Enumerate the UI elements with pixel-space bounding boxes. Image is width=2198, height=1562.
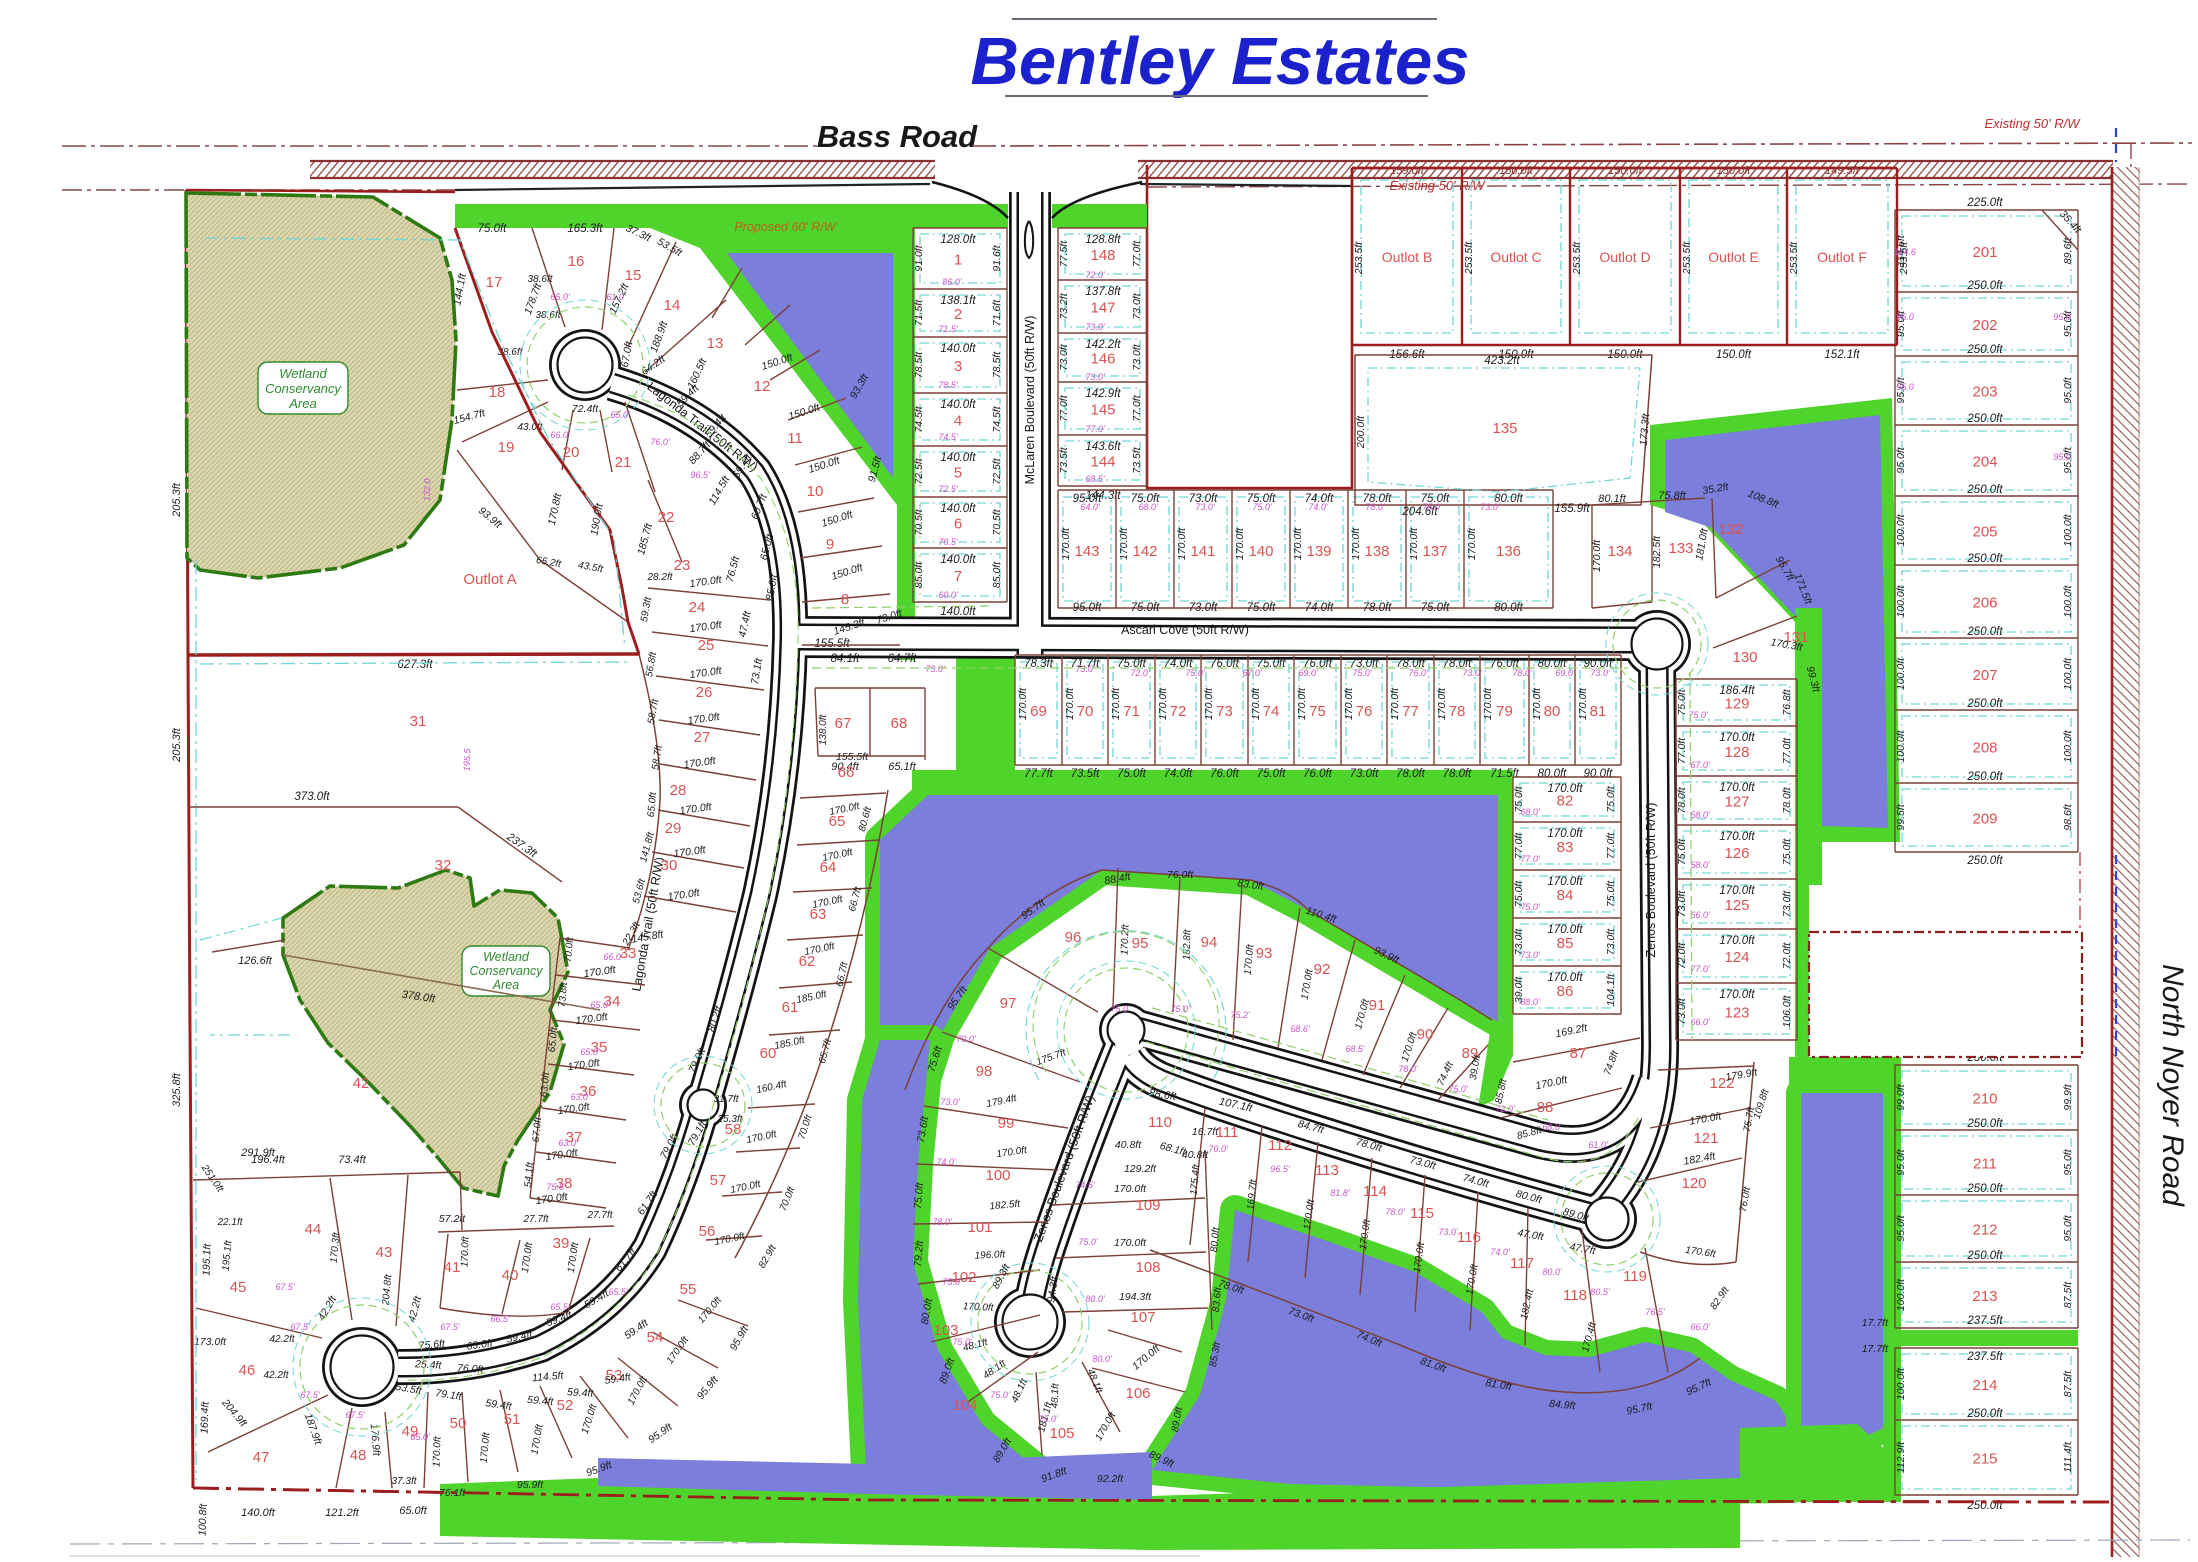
svg-text:128: 128 — [1724, 744, 1749, 761]
svg-text:99.5ft: 99.5ft — [1895, 803, 1907, 830]
svg-text:77.0ft: 77.0ft — [1781, 737, 1793, 764]
svg-text:61.0': 61.0' — [606, 292, 626, 302]
svg-text:75.0': 75.0' — [1520, 902, 1540, 912]
svg-text:108: 108 — [1135, 1259, 1160, 1276]
svg-text:73.5ft: 73.5ft — [1058, 446, 1070, 473]
svg-text:25.4ft: 25.4ft — [414, 1358, 443, 1371]
svg-text:106: 106 — [1125, 1385, 1150, 1402]
svg-text:100.0ft: 100.0ft — [2062, 729, 2074, 762]
svg-text:112.9ft: 112.9ft — [1895, 1441, 1907, 1473]
svg-text:75.0': 75.0' — [1688, 710, 1708, 720]
svg-text:100.8ft: 100.8ft — [196, 1503, 209, 1537]
svg-text:165.3ft: 165.3ft — [567, 223, 603, 235]
svg-text:155.5ft: 155.5ft — [836, 751, 869, 763]
svg-text:76.0': 76.0' — [1408, 668, 1428, 678]
svg-text:Zenos Boulevard (50ft R/W): Zenos Boulevard (50ft R/W) — [1644, 803, 1658, 958]
svg-text:85: 85 — [1557, 935, 1574, 952]
svg-text:150.0ft: 150.0ft — [1499, 165, 1534, 177]
svg-text:253.5ft: 253.5ft — [1353, 241, 1365, 275]
svg-text:66.5': 66.5' — [490, 1314, 510, 1324]
svg-text:4: 4 — [954, 413, 962, 430]
svg-text:207: 207 — [1972, 667, 1997, 684]
svg-text:77.5ft: 77.5ft — [1058, 240, 1070, 267]
svg-text:70.0': 70.0' — [1208, 1144, 1228, 1154]
svg-text:205.3ft: 205.3ft — [171, 482, 183, 518]
svg-text:78.0': 78.0' — [1385, 1207, 1405, 1217]
svg-text:17: 17 — [486, 274, 503, 291]
svg-text:72.5ft: 72.5ft — [913, 457, 925, 484]
svg-text:Wetland: Wetland — [279, 366, 327, 381]
svg-text:74.0': 74.0' — [1308, 502, 1328, 512]
svg-text:203: 203 — [1972, 384, 1997, 401]
svg-text:84.1ft: 84.1ft — [831, 653, 861, 665]
svg-text:71: 71 — [1123, 703, 1140, 720]
svg-text:225.0ft: 225.0ft — [1966, 197, 2003, 209]
svg-text:253.5ft: 253.5ft — [1463, 241, 1475, 275]
svg-text:73.0': 73.0' — [1520, 950, 1540, 960]
svg-text:99.0ft: 99.0ft — [1895, 1083, 1907, 1110]
svg-text:72.5': 72.5' — [938, 484, 958, 494]
svg-text:205.3ft: 205.3ft — [171, 727, 183, 763]
svg-text:170.0ft: 170.0ft — [1114, 1237, 1147, 1249]
svg-text:141: 141 — [1190, 543, 1215, 560]
svg-text:51: 51 — [504, 1411, 521, 1428]
svg-text:100.0ft: 100.0ft — [2062, 584, 2074, 617]
svg-text:250.0ft: 250.0ft — [1966, 344, 2003, 356]
svg-text:75.0ft: 75.0ft — [1605, 785, 1617, 812]
svg-text:98.6ft: 98.6ft — [2062, 803, 2074, 830]
svg-text:250.0ft: 250.0ft — [1966, 484, 2003, 496]
svg-text:78.5': 78.5' — [938, 380, 958, 390]
svg-text:169.4ft: 169.4ft — [198, 1401, 211, 1435]
svg-text:67.5': 67.5' — [290, 1322, 310, 1332]
svg-text:59.4ft: 59.4ft — [567, 1386, 595, 1399]
svg-text:73.5ft: 73.5ft — [1131, 446, 1143, 473]
svg-text:78.0ft: 78.0ft — [1443, 768, 1473, 780]
svg-text:170.0ft: 170.0ft — [1343, 687, 1355, 720]
svg-text:237.5ft: 237.5ft — [1966, 1315, 2003, 1327]
svg-text:75.0': 75.0' — [952, 1337, 972, 1347]
svg-text:85.0ft: 85.0ft — [913, 561, 925, 588]
svg-text:66: 66 — [838, 764, 855, 781]
svg-text:66.0': 66.0' — [1690, 910, 1710, 920]
svg-text:74.5ft: 74.5ft — [991, 405, 1003, 432]
svg-text:170.0ft: 170.0ft — [1296, 687, 1308, 720]
svg-text:98: 98 — [976, 1063, 993, 1080]
svg-text:41: 41 — [444, 1259, 461, 1276]
svg-text:107: 107 — [1130, 1309, 1155, 1326]
svg-text:37.3ft: 37.3ft — [391, 1476, 417, 1487]
svg-text:65.1ft: 65.1ft — [888, 761, 916, 773]
svg-text:140.0ft: 140.0ft — [940, 452, 976, 464]
svg-text:75.0': 75.0' — [1185, 668, 1205, 678]
svg-text:170.0ft: 170.0ft — [1203, 687, 1215, 720]
svg-text:25: 25 — [698, 637, 715, 654]
svg-text:76.0': 76.0' — [650, 437, 670, 447]
svg-text:75: 75 — [1309, 703, 1326, 720]
svg-text:80.0ft: 80.0ft — [1209, 1226, 1222, 1253]
svg-text:195.1ft: 195.1ft — [200, 1243, 213, 1277]
svg-text:67.5': 67.5' — [345, 1410, 365, 1420]
svg-text:150.0ft: 150.0ft — [1716, 349, 1752, 361]
svg-text:78.0ft: 78.0ft — [1363, 602, 1393, 614]
svg-text:100.0ft: 100.0ft — [2062, 513, 2074, 546]
svg-text:Outlot D: Outlot D — [1599, 249, 1650, 265]
svg-text:Bass Road: Bass Road — [817, 119, 978, 154]
svg-text:1: 1 — [954, 252, 962, 269]
svg-text:40.8ft: 40.8ft — [1182, 1149, 1209, 1161]
svg-text:65.5': 65.5' — [608, 1287, 628, 1297]
svg-text:73.5ft: 73.5ft — [1071, 768, 1101, 780]
svg-text:78.0': 78.0' — [1365, 502, 1385, 512]
svg-text:200.0ft: 200.0ft — [1355, 415, 1367, 449]
svg-text:76.0ft: 76.0ft — [1210, 768, 1240, 780]
svg-text:250.0ft: 250.0ft — [1966, 1118, 2003, 1130]
svg-text:95.0ft: 95.0ft — [2062, 376, 2074, 403]
svg-text:95: 95 — [1132, 935, 1149, 952]
svg-text:73.0ft: 73.0ft — [1605, 928, 1617, 955]
svg-text:194.3ft: 194.3ft — [1119, 1291, 1152, 1303]
svg-text:170.0ft: 170.0ft — [1547, 924, 1583, 936]
svg-text:Area: Area — [288, 396, 316, 411]
svg-text:28.2ft: 28.2ft — [646, 572, 673, 583]
svg-text:63.0': 63.0' — [558, 1138, 578, 1148]
svg-text:75.0ft: 75.0ft — [478, 223, 508, 235]
svg-text:73.0': 73.0' — [1462, 668, 1482, 678]
svg-text:95.0ft: 95.0ft — [1073, 602, 1103, 614]
svg-text:210: 210 — [1972, 1091, 1997, 1108]
svg-text:71.5ft: 71.5ft — [1490, 768, 1520, 780]
svg-text:173.0ft: 173.0ft — [194, 1336, 227, 1348]
svg-text:213: 213 — [1972, 1288, 1997, 1305]
svg-text:10: 10 — [807, 483, 824, 500]
svg-text:170.0ft: 170.0ft — [1719, 831, 1755, 843]
svg-text:47: 47 — [253, 1449, 270, 1466]
svg-text:16: 16 — [568, 253, 585, 270]
svg-text:45: 45 — [230, 1279, 247, 1296]
svg-text:147: 147 — [1090, 300, 1115, 317]
svg-text:73.0ft: 73.0ft — [1058, 343, 1070, 370]
svg-text:86.0': 86.0' — [942, 277, 962, 287]
svg-text:65.0': 65.0' — [580, 1047, 600, 1057]
svg-text:87.5ft: 87.5ft — [2062, 1370, 2074, 1397]
svg-text:29: 29 — [665, 820, 682, 837]
svg-text:75.0': 75.0' — [1038, 1414, 1058, 1424]
svg-text:86: 86 — [1557, 983, 1574, 1000]
svg-text:67.0ft: 67.0ft — [531, 1116, 544, 1143]
svg-text:65.0': 65.0' — [590, 1000, 610, 1010]
svg-text:211: 211 — [1973, 1156, 1997, 1173]
svg-text:76.0ft: 76.0ft — [1167, 869, 1194, 881]
svg-text:72: 72 — [1170, 703, 1187, 720]
svg-text:70.5ft: 70.5ft — [913, 508, 925, 535]
svg-text:69.0': 69.0' — [1555, 668, 1575, 678]
svg-text:74.0ft: 74.0ft — [1305, 602, 1335, 614]
svg-text:95.0ft: 95.0ft — [1895, 446, 1907, 473]
svg-text:75.2': 75.2' — [1230, 1010, 1250, 1020]
svg-text:170.0ft: 170.0ft — [1531, 687, 1543, 720]
svg-text:92.2ft: 92.2ft — [1097, 1473, 1124, 1485]
svg-text:250.0ft: 250.0ft — [1966, 626, 2003, 638]
svg-text:88: 88 — [1537, 1099, 1554, 1116]
svg-text:95.0: 95.0 — [1896, 382, 1914, 392]
svg-text:40.8ft: 40.8ft — [1115, 1139, 1142, 1151]
svg-text:110: 110 — [1148, 1114, 1172, 1131]
svg-text:28: 28 — [670, 782, 687, 799]
svg-text:95.0ft: 95.0ft — [1895, 1214, 1907, 1241]
svg-text:77.0ft: 77.0ft — [1605, 832, 1617, 859]
svg-text:135: 135 — [1492, 420, 1517, 437]
svg-text:95.9ft: 95.9ft — [517, 1479, 544, 1491]
svg-text:25.3ft: 25.3ft — [716, 1114, 743, 1125]
svg-text:75.0ft: 75.0ft — [912, 1181, 926, 1209]
svg-text:68.5': 68.5' — [1345, 1044, 1365, 1054]
svg-text:44: 44 — [305, 1221, 322, 1238]
svg-text:127: 127 — [1724, 794, 1749, 811]
svg-text:27.7ft: 27.7ft — [586, 1210, 613, 1221]
svg-text:170.0ft: 170.0ft — [1118, 527, 1130, 560]
svg-text:155.9ft: 155.9ft — [1554, 503, 1590, 515]
svg-text:72.0': 72.0' — [1495, 1104, 1515, 1114]
svg-text:84.9ft: 84.9ft — [1549, 1398, 1577, 1412]
svg-text:77.0ft: 77.0ft — [1131, 240, 1143, 267]
svg-text:92: 92 — [1314, 961, 1331, 978]
svg-text:100.0ft: 100.0ft — [1895, 729, 1907, 762]
svg-text:118: 118 — [1563, 1287, 1587, 1304]
svg-text:77.0': 77.0' — [1690, 964, 1710, 974]
svg-text:140.0ft: 140.0ft — [940, 606, 976, 618]
svg-text:78.0ft: 78.0ft — [1676, 786, 1688, 813]
svg-text:96.5': 96.5' — [690, 470, 710, 480]
svg-text:55: 55 — [680, 1281, 697, 1298]
svg-text:11: 11 — [787, 430, 803, 447]
svg-text:80.0': 80.0' — [1085, 1294, 1105, 1304]
svg-text:100.0ft: 100.0ft — [1895, 1278, 1907, 1311]
svg-text:95.0ft: 95.0ft — [2062, 1214, 2074, 1241]
svg-text:40: 40 — [502, 1267, 519, 1284]
svg-text:138.1ft: 138.1ft — [940, 295, 976, 307]
svg-text:212: 212 — [1972, 1222, 1997, 1239]
svg-text:76: 76 — [1356, 703, 1373, 720]
svg-text:78.0': 78.0' — [1512, 668, 1532, 678]
svg-text:215: 215 — [1972, 1451, 1997, 1468]
svg-text:9: 9 — [826, 536, 834, 553]
svg-text:170.0ft: 170.0ft — [1114, 1183, 1147, 1195]
svg-text:88.0': 88.0' — [1520, 997, 1540, 1007]
svg-text:64.7ft: 64.7ft — [888, 653, 918, 665]
svg-text:170.0ft: 170.0ft — [1234, 527, 1246, 560]
svg-text:291.9ft: 291.9ft — [240, 1147, 276, 1159]
svg-text:170.0ft: 170.0ft — [1389, 687, 1401, 720]
svg-text:142.2ft: 142.2ft — [1085, 339, 1121, 351]
svg-text:39: 39 — [553, 1235, 570, 1252]
svg-text:73.0ft: 73.0ft — [1131, 292, 1143, 319]
svg-text:159.0ft: 159.0ft — [1390, 165, 1425, 177]
svg-text:74.5': 74.5' — [938, 432, 958, 442]
svg-text:121: 121 — [1693, 1130, 1718, 1147]
svg-text:253.5ft: 253.5ft — [1788, 241, 1800, 275]
svg-text:95.0: 95.0 — [2053, 312, 2071, 322]
svg-text:96.5': 96.5' — [1270, 1164, 1290, 1174]
svg-text:129: 129 — [1724, 696, 1749, 713]
svg-text:209: 209 — [1972, 811, 1997, 828]
svg-text:78.0': 78.0' — [1398, 1064, 1418, 1074]
svg-text:73.0': 73.0' — [940, 1097, 960, 1107]
svg-text:77.0ft: 77.0ft — [1676, 737, 1688, 764]
svg-text:170.0ft: 170.0ft — [1064, 687, 1076, 720]
svg-text:125: 125 — [1724, 897, 1749, 914]
svg-text:74.5ft: 74.5ft — [913, 405, 925, 432]
svg-text:26: 26 — [696, 684, 713, 701]
svg-text:91.6ft: 91.6ft — [991, 244, 1003, 271]
svg-text:14: 14 — [664, 297, 681, 314]
svg-text:Outlot C: Outlot C — [1490, 249, 1541, 265]
svg-text:208: 208 — [1972, 740, 1997, 757]
svg-text:137.8ft: 137.8ft — [1085, 286, 1121, 298]
svg-text:68.0': 68.0' — [1138, 502, 1158, 512]
svg-text:113: 113 — [1315, 1162, 1339, 1179]
svg-text:54: 54 — [647, 1329, 664, 1346]
svg-text:136: 136 — [1496, 543, 1521, 560]
svg-text:65.0': 65.0' — [550, 292, 570, 302]
svg-text:143.6ft: 143.6ft — [1085, 441, 1121, 453]
svg-text:124: 124 — [1724, 949, 1749, 966]
svg-text:73.0ft: 73.0ft — [1350, 768, 1380, 780]
svg-text:27.7ft: 27.7ft — [522, 1214, 549, 1225]
svg-text:250.0ft: 250.0ft — [1966, 553, 2003, 565]
svg-text:Proposed 60' R/W: Proposed 60' R/W — [734, 220, 836, 234]
svg-text:95.0: 95.0 — [1896, 312, 1914, 322]
svg-text:71.5ft: 71.5ft — [913, 299, 925, 326]
svg-text:74.5': 74.5' — [1075, 1180, 1095, 1190]
svg-text:80: 80 — [1544, 703, 1561, 720]
svg-text:73.2ft: 73.2ft — [1058, 292, 1070, 319]
svg-text:121.2ft: 121.2ft — [325, 1507, 360, 1519]
svg-text:69.0': 69.0' — [1298, 668, 1318, 678]
svg-text:84: 84 — [1557, 887, 1574, 904]
svg-text:87: 87 — [1570, 1045, 1587, 1062]
svg-text:79.2ft: 79.2ft — [912, 1239, 926, 1267]
svg-text:50: 50 — [450, 1415, 467, 1432]
svg-text:100: 100 — [985, 1167, 1010, 1184]
svg-text:75.0ft: 75.0ft — [1421, 602, 1451, 614]
svg-text:253.5ft: 253.5ft — [1898, 241, 1910, 275]
svg-text:69: 69 — [1030, 703, 1047, 720]
svg-text:59.4ft: 59.4ft — [527, 1394, 555, 1408]
svg-text:52: 52 — [557, 1397, 574, 1414]
svg-text:70.5': 70.5' — [938, 537, 958, 547]
svg-text:73.0': 73.0' — [1480, 502, 1500, 512]
svg-text:196.0ft: 196.0ft — [974, 1249, 1006, 1262]
svg-text:81: 81 — [1590, 703, 1607, 720]
svg-text:89.6ft: 89.6ft — [2062, 237, 2074, 264]
svg-text:66.0': 66.0' — [603, 952, 623, 962]
svg-text:75.0ft: 75.0ft — [1605, 880, 1617, 907]
svg-text:78.0': 78.0' — [932, 1217, 952, 1227]
svg-text:78.0ft: 78.0ft — [1396, 768, 1426, 780]
svg-text:80.0ft: 80.0ft — [1494, 602, 1524, 614]
svg-text:83: 83 — [1557, 839, 1574, 856]
svg-text:148: 148 — [1090, 247, 1115, 264]
svg-text:76.0ft: 76.0ft — [1303, 768, 1333, 780]
svg-text:132.0: 132.0 — [422, 478, 433, 501]
svg-text:145: 145 — [1090, 402, 1115, 419]
svg-text:106.0ft: 106.0ft — [1781, 994, 1793, 1027]
svg-text:128.8ft: 128.8ft — [1085, 234, 1121, 246]
svg-text:70: 70 — [1077, 703, 1094, 720]
svg-text:Outlot E: Outlot E — [1708, 249, 1759, 265]
svg-text:250.0ft: 250.0ft — [1966, 855, 2003, 867]
svg-text:114.6: 114.6 — [1894, 247, 1916, 257]
svg-text:140.0ft: 140.0ft — [940, 554, 976, 566]
svg-text:73.0': 73.0' — [1085, 372, 1105, 382]
svg-text:146: 146 — [1090, 351, 1115, 368]
svg-text:91.0ft: 91.0ft — [913, 244, 925, 271]
svg-text:170.0ft: 170.0ft — [459, 1235, 471, 1267]
svg-text:97: 97 — [1000, 995, 1017, 1012]
svg-text:73.0ft: 73.0ft — [1131, 343, 1143, 370]
svg-text:43: 43 — [376, 1244, 393, 1261]
svg-text:73.0ft: 73.0ft — [1189, 602, 1219, 614]
svg-text:61.0': 61.0' — [1588, 1140, 1608, 1150]
svg-text:170.0ft: 170.0ft — [1110, 687, 1122, 720]
svg-text:95.0: 95.0 — [2053, 452, 2071, 462]
svg-text:75.0': 75.0' — [1352, 668, 1372, 678]
svg-text:627.3ft: 627.3ft — [397, 659, 433, 671]
svg-text:253.5ft: 253.5ft — [1571, 241, 1583, 275]
svg-text:42.2ft: 42.2ft — [269, 1334, 295, 1345]
svg-text:67.5': 67.5' — [275, 1282, 295, 1292]
svg-text:182.5ft: 182.5ft — [1651, 535, 1663, 568]
svg-text:101: 101 — [967, 1219, 992, 1236]
svg-text:128.0ft: 128.0ft — [940, 234, 976, 246]
svg-text:77.0ft: 77.0ft — [1131, 394, 1143, 421]
svg-text:75.0': 75.0' — [1170, 1004, 1190, 1014]
svg-text:78.0ft: 78.0ft — [1781, 786, 1793, 813]
svg-text:68.0': 68.0' — [1520, 807, 1540, 817]
svg-text:76.5': 76.5' — [1645, 1307, 1665, 1317]
svg-text:68.0': 68.0' — [1542, 1122, 1562, 1132]
svg-text:20: 20 — [563, 444, 580, 461]
svg-text:237.5ft: 237.5ft — [1966, 1351, 2003, 1363]
svg-text:60.0': 60.0' — [938, 590, 958, 600]
svg-text:126: 126 — [1724, 845, 1749, 862]
svg-text:120: 120 — [1681, 1175, 1706, 1192]
svg-text:205: 205 — [1972, 524, 1997, 541]
svg-text:75.8ft: 75.8ft — [1658, 490, 1686, 502]
svg-text:64.0': 64.0' — [1080, 502, 1100, 512]
svg-text:170.0ft: 170.0ft — [1719, 782, 1755, 794]
svg-text:74.0ft: 74.0ft — [1164, 768, 1194, 780]
svg-text:42: 42 — [353, 1075, 370, 1092]
svg-text:31: 31 — [410, 713, 427, 730]
svg-text:77: 77 — [1402, 703, 1419, 720]
svg-text:75.0ft: 75.0ft — [1257, 768, 1287, 780]
svg-text:170.0ft: 170.0ft — [1719, 732, 1755, 744]
svg-text:73.0': 73.0' — [1085, 322, 1105, 332]
svg-text:144: 144 — [1090, 454, 1115, 471]
svg-text:8: 8 — [841, 591, 849, 608]
svg-text:74.0': 74.0' — [1490, 1247, 1510, 1257]
svg-text:70.5ft: 70.5ft — [991, 508, 1003, 535]
svg-text:126.6ft: 126.6ft — [238, 955, 273, 967]
svg-text:Outlot F: Outlot F — [1817, 249, 1867, 265]
svg-text:74.0': 74.0' — [936, 1157, 956, 1167]
svg-text:72.0': 72.0' — [1130, 668, 1150, 678]
svg-text:42.2ft: 42.2ft — [263, 1370, 289, 1381]
svg-text:123: 123 — [1724, 1005, 1749, 1022]
svg-text:129.2ft: 129.2ft — [1124, 1163, 1157, 1175]
